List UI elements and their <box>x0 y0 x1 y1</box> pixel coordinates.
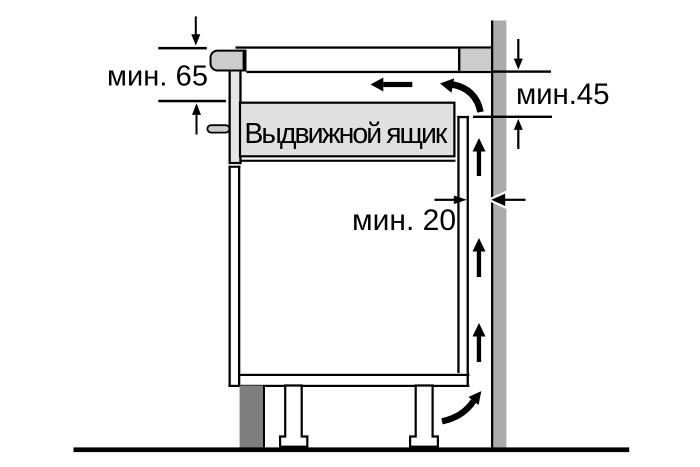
svg-text:мин. 65: мин. 65 <box>107 61 208 93</box>
svg-text:Выдвижной ящик: Выдвижной ящик <box>244 118 448 150</box>
svg-text:мин.45: мин.45 <box>516 78 610 111</box>
svg-text:мин. 20: мин. 20 <box>352 204 456 237</box>
